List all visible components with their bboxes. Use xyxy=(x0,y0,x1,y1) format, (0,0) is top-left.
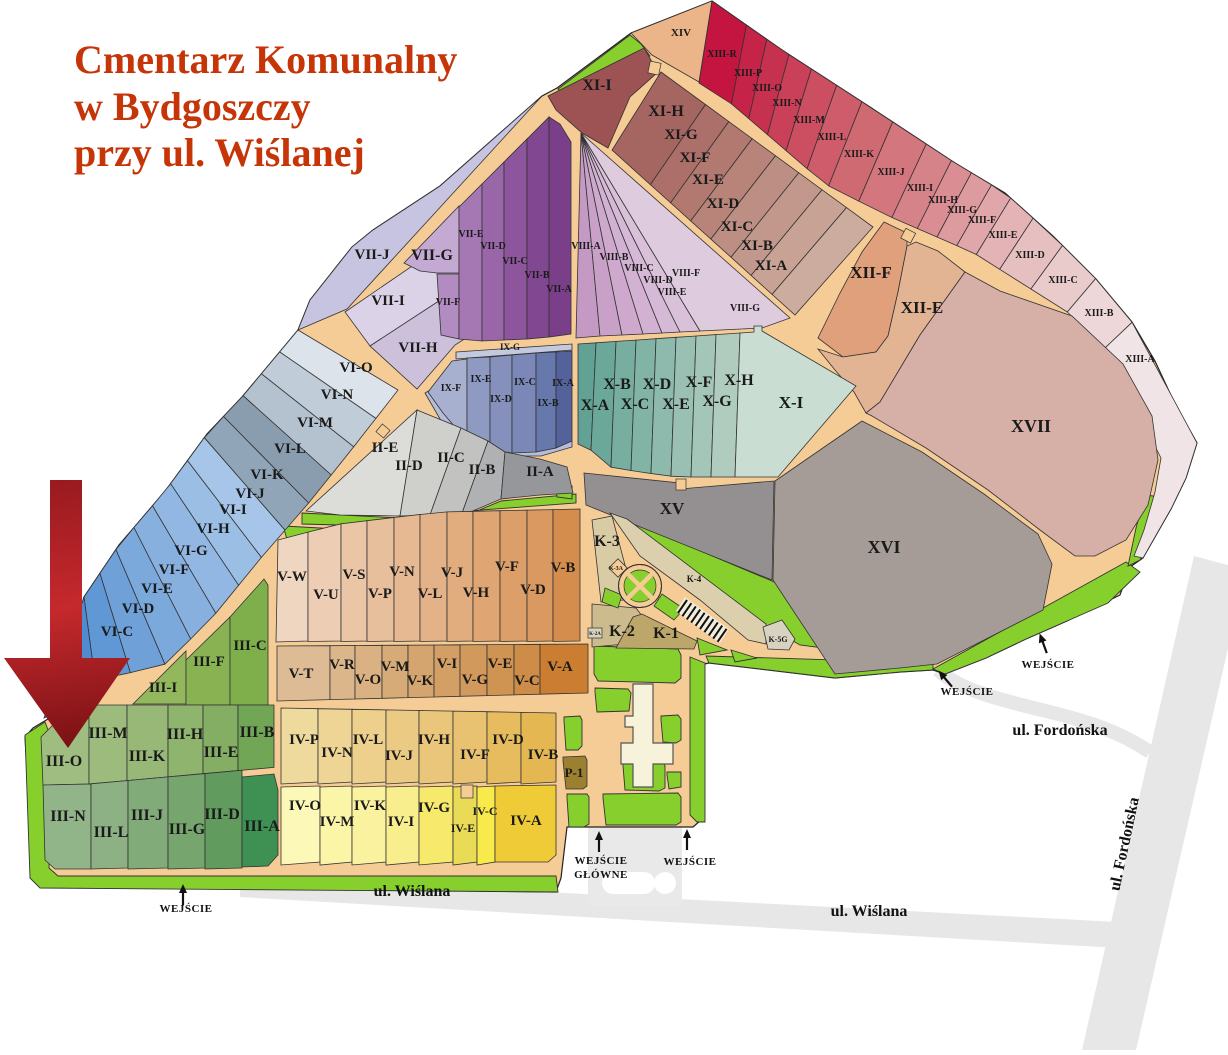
svg-text:VII-H: VII-H xyxy=(398,340,438,356)
svg-text:II-C: II-C xyxy=(437,450,465,466)
svg-text:XIII-F: XIII-F xyxy=(968,215,996,226)
svg-text:II-A: II-A xyxy=(526,464,554,480)
svg-text:X-C: X-C xyxy=(621,396,649,413)
svg-text:IV-H: IV-H xyxy=(418,732,451,748)
svg-text:P-1: P-1 xyxy=(565,765,584,780)
svg-text:XI-E: XI-E xyxy=(692,172,724,188)
svg-text:XIII-R: XIII-R xyxy=(707,49,737,60)
svg-text:IV-C: IV-C xyxy=(472,804,497,818)
svg-text:XIII-P: XIII-P xyxy=(734,68,762,79)
svg-text:IV-G: IV-G xyxy=(418,800,451,816)
svg-text:IX-D: IX-D xyxy=(490,394,512,405)
svg-text:K-3A: K-3A xyxy=(609,566,624,572)
svg-text:XI-H: XI-H xyxy=(648,103,684,120)
svg-text:IV-L: IV-L xyxy=(353,732,384,748)
svg-text:XV: XV xyxy=(660,499,685,518)
svg-text:IV-B: IV-B xyxy=(528,747,559,763)
svg-text:III-I: III-I xyxy=(149,680,178,696)
svg-text:WEJŚCIE: WEJŚCIE xyxy=(940,686,993,698)
svg-text:VIII-B: VIII-B xyxy=(600,252,629,263)
svg-text:III-C: III-C xyxy=(233,638,266,654)
svg-text:XIII-I: XIII-I xyxy=(907,183,933,194)
svg-text:WEJŚCIE: WEJŚCIE xyxy=(1021,659,1074,671)
svg-text:III-B: III-B xyxy=(240,724,275,741)
svg-text:V-D: V-D xyxy=(520,582,546,598)
svg-text:VI-F: VI-F xyxy=(159,562,190,578)
svg-text:VI-C: VI-C xyxy=(101,624,134,640)
svg-text:V-E: V-E xyxy=(488,656,513,672)
svg-text:XIII-N: XIII-N xyxy=(772,98,802,109)
svg-text:VI-M: VI-M xyxy=(297,415,333,431)
svg-text:IV-A: IV-A xyxy=(510,813,542,829)
svg-text:VIII-E: VIII-E xyxy=(658,287,687,298)
svg-text:VI-D: VI-D xyxy=(122,601,155,617)
svg-text:XII-F: XII-F xyxy=(850,263,892,282)
svg-text:V-W: V-W xyxy=(277,569,307,585)
svg-text:VII-I: VII-I xyxy=(371,293,405,309)
svg-text:XIII-M: XIII-M xyxy=(793,115,825,126)
svg-text:VI-I: VI-I xyxy=(219,502,247,518)
svg-text:Cmentarz Komunalny: Cmentarz Komunalny xyxy=(74,37,457,82)
svg-text:ul. Wiślana: ul. Wiślana xyxy=(831,903,908,920)
svg-text:IX-A: IX-A xyxy=(552,378,574,389)
svg-text:VIII-F: VIII-F xyxy=(672,268,700,279)
svg-text:XIII-L: XIII-L xyxy=(818,132,847,143)
svg-text:III-F: III-F xyxy=(193,654,225,670)
svg-text:IX-F: IX-F xyxy=(441,383,462,394)
svg-text:XIII-K: XIII-K xyxy=(844,149,874,160)
svg-text:V-K: V-K xyxy=(407,673,434,689)
svg-text:IV-J: IV-J xyxy=(385,748,414,764)
svg-text:IV-P: IV-P xyxy=(289,732,319,748)
svg-text:XIII-A: XIII-A xyxy=(1125,354,1155,365)
svg-text:IV-D: IV-D xyxy=(492,732,524,748)
svg-text:XIII-J: XIII-J xyxy=(877,167,904,178)
svg-text:K-1: K-1 xyxy=(653,625,679,642)
svg-text:XI-F: XI-F xyxy=(680,150,711,166)
svg-text:XVI: XVI xyxy=(867,537,900,557)
svg-text:IV-O: IV-O xyxy=(289,798,321,814)
svg-text:III-L: III-L xyxy=(94,824,129,841)
svg-text:XIII-B: XIII-B xyxy=(1085,308,1114,319)
svg-text:VII-A: VII-A xyxy=(546,284,572,295)
svg-text:IV-M: IV-M xyxy=(320,814,355,830)
svg-text:WEJŚCIE: WEJŚCIE xyxy=(574,855,627,867)
svg-text:X-B: X-B xyxy=(603,376,631,393)
svg-text:V-B: V-B xyxy=(551,560,576,576)
svg-text:w Bydgoszczy: w Bydgoszczy xyxy=(74,84,311,129)
svg-text:V-N: V-N xyxy=(389,564,415,580)
svg-text:III-O: III-O xyxy=(46,753,82,770)
svg-text:XI-A: XI-A xyxy=(755,258,788,274)
svg-text:WEJŚCIE: WEJŚCIE xyxy=(159,903,212,915)
svg-text:IX-B: IX-B xyxy=(537,398,558,409)
svg-text:X-G: X-G xyxy=(702,393,732,410)
svg-text:III-A: III-A xyxy=(244,818,280,835)
svg-text:V-H: V-H xyxy=(463,585,490,601)
svg-text:VI-O: VI-O xyxy=(339,360,372,376)
svg-text:VIII-G: VIII-G xyxy=(730,303,760,314)
svg-text:VII-F: VII-F xyxy=(436,297,460,308)
svg-text:VII-B: VII-B xyxy=(524,270,549,281)
svg-text:V-G: V-G xyxy=(462,672,489,688)
svg-text:V-U: V-U xyxy=(313,587,339,603)
svg-text:K-4: K-4 xyxy=(687,574,702,584)
svg-text:XI-C: XI-C xyxy=(721,219,754,235)
svg-text:X-F: X-F xyxy=(686,374,713,391)
svg-text:IX-E: IX-E xyxy=(470,374,491,385)
svg-text:III-E: III-E xyxy=(204,744,239,761)
svg-text:WEJŚCIE: WEJŚCIE xyxy=(663,856,716,868)
svg-text:V-R: V-R xyxy=(329,657,355,673)
svg-text:V-J: V-J xyxy=(441,565,464,581)
svg-text:V-T: V-T xyxy=(289,666,314,682)
svg-text:VIII-C: VIII-C xyxy=(624,263,653,274)
svg-text:ul. Fordońska: ul. Fordońska xyxy=(1012,722,1107,739)
svg-text:III-D: III-D xyxy=(204,806,240,823)
svg-text:XIII-D: XIII-D xyxy=(1015,250,1044,261)
svg-text:VIII-D: VIII-D xyxy=(643,275,672,286)
svg-text:III-J: III-J xyxy=(131,807,163,824)
svg-text:V-L: V-L xyxy=(418,586,443,602)
svg-text:VII-D: VII-D xyxy=(480,241,506,252)
svg-text:VII-C: VII-C xyxy=(502,256,528,267)
svg-text:V-P: V-P xyxy=(368,586,392,602)
svg-text:XI-G: XI-G xyxy=(664,127,698,143)
svg-text:VI-H: VI-H xyxy=(196,521,230,537)
svg-text:II-B: II-B xyxy=(469,462,496,478)
svg-text:IX-G: IX-G xyxy=(500,342,520,352)
svg-text:XI-D: XI-D xyxy=(707,196,740,212)
svg-text:V-I: V-I xyxy=(437,656,458,672)
svg-text:IV-K: IV-K xyxy=(354,798,387,814)
svg-text:II-E: II-E xyxy=(372,440,399,456)
svg-text:II-D: II-D xyxy=(395,458,423,474)
svg-text:IX-C: IX-C xyxy=(514,377,536,388)
svg-text:VI-L: VI-L xyxy=(274,441,306,457)
svg-text:III-N: III-N xyxy=(50,808,86,825)
svg-text:VI-J: VI-J xyxy=(235,486,265,502)
svg-text:K-2: K-2 xyxy=(609,623,635,640)
svg-text:XIV: XIV xyxy=(671,27,691,39)
svg-text:X-H: X-H xyxy=(724,372,754,389)
svg-text:K-5G: K-5G xyxy=(768,635,787,644)
svg-text:GŁÓWNE: GŁÓWNE xyxy=(574,869,628,881)
svg-text:III-H: III-H xyxy=(167,726,204,743)
svg-text:V-F: V-F xyxy=(495,559,519,575)
svg-text:X-A: X-A xyxy=(581,397,610,414)
svg-text:V-A: V-A xyxy=(547,659,573,675)
svg-text:III-K: III-K xyxy=(129,748,166,765)
svg-text:XIII-C: XIII-C xyxy=(1048,275,1077,286)
svg-text:XIII-O: XIII-O xyxy=(752,83,782,94)
svg-text:IV-E: IV-E xyxy=(451,821,475,835)
svg-text:VI-E: VI-E xyxy=(141,581,173,597)
svg-text:VI-K: VI-K xyxy=(250,467,284,483)
svg-text:K-3: K-3 xyxy=(594,533,620,550)
svg-text:X-E: X-E xyxy=(662,396,690,413)
svg-text:X-I: X-I xyxy=(779,393,804,412)
svg-text:V-C: V-C xyxy=(514,673,540,689)
svg-text:ul. Wiślana: ul. Wiślana xyxy=(374,883,451,900)
svg-text:V-M: V-M xyxy=(381,659,410,675)
svg-text:IV-N: IV-N xyxy=(321,745,353,761)
svg-text:VII-E: VII-E xyxy=(458,229,483,240)
svg-text:XIII-E: XIII-E xyxy=(989,230,1018,241)
svg-text:XII-E: XII-E xyxy=(901,298,944,317)
svg-text:XVII: XVII xyxy=(1011,416,1051,436)
svg-text:X-D: X-D xyxy=(643,376,671,393)
svg-text:III-G: III-G xyxy=(169,821,206,838)
svg-text:VIII-A: VIII-A xyxy=(571,241,601,252)
svg-text:K-2A: K-2A xyxy=(589,632,601,637)
svg-text:V-S: V-S xyxy=(342,567,365,583)
svg-text:IV-F: IV-F xyxy=(460,747,490,763)
svg-text:VII-J: VII-J xyxy=(354,247,390,263)
svg-text:III-M: III-M xyxy=(88,725,127,742)
svg-text:przy ul. Wiślanej: przy ul. Wiślanej xyxy=(74,130,365,175)
svg-text:XI-I: XI-I xyxy=(582,77,611,94)
svg-text:V-O: V-O xyxy=(355,672,381,688)
svg-text:VI-N: VI-N xyxy=(321,387,354,403)
svg-text:IV-I: IV-I xyxy=(388,814,415,830)
svg-text:XI-B: XI-B xyxy=(741,238,773,254)
svg-text:VI-G: VI-G xyxy=(174,543,208,559)
svg-text:VII-G: VII-G xyxy=(411,247,453,264)
